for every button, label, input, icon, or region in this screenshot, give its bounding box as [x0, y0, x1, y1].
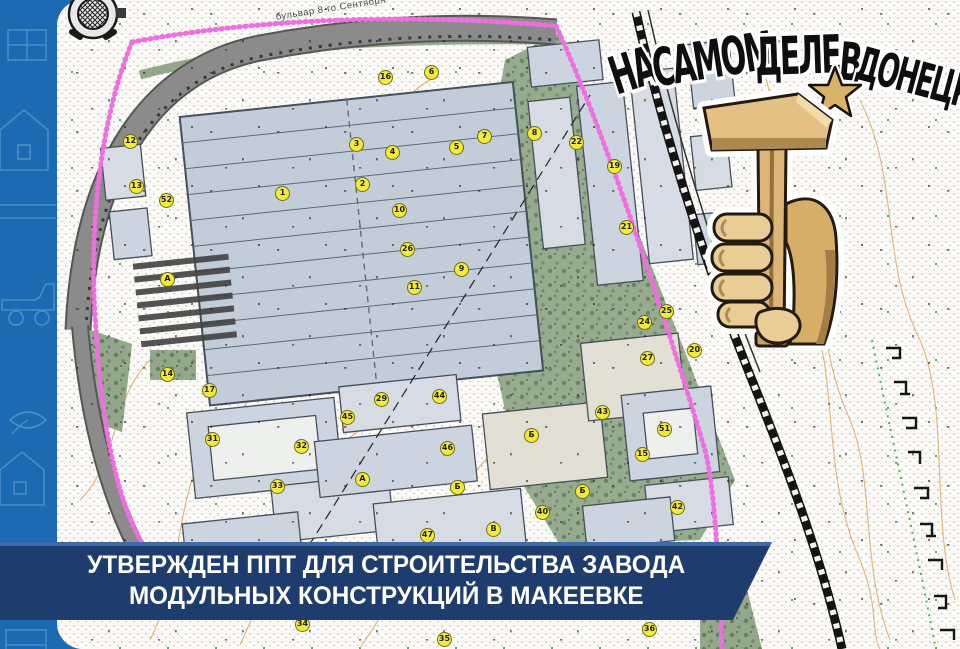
map-marker: 29: [374, 392, 389, 407]
map-marker: 36: [642, 622, 657, 637]
compass-icon: [60, 0, 128, 48]
map-marker: 4: [385, 145, 400, 160]
map-marker: 24: [637, 315, 652, 330]
headline-banner: УТВЕРЖДЕН ППТ ДЛЯ СТРОИТЕЛЬСТВА ЗАВОДА М…: [0, 542, 772, 620]
map-marker: 42: [670, 500, 685, 515]
map-marker: 35: [437, 632, 452, 647]
map-marker: 2: [355, 177, 370, 192]
map-marker: 43: [595, 405, 610, 420]
map-marker: 31: [205, 432, 220, 447]
map-marker: 12: [123, 134, 138, 149]
map-marker: 33: [270, 479, 285, 494]
map-marker: 40: [535, 505, 550, 520]
map-marker: Б: [575, 484, 590, 499]
map-marker: 46: [440, 441, 455, 456]
map-marker: 3: [349, 137, 364, 152]
map-marker: 52: [159, 193, 174, 208]
map-marker: А: [160, 272, 175, 287]
map-marker: 44: [432, 389, 447, 404]
map-marker: 19: [607, 159, 622, 174]
map-marker: 26: [400, 242, 415, 257]
map-marker: 22: [569, 135, 584, 150]
map-marker: Б: [450, 480, 465, 495]
banner-top-border: [0, 542, 772, 546]
map-marker: 10: [392, 203, 407, 218]
banner-line-2: МОДУЛЬНЫХ КОНСТРУКЦИЙ В МАКЕЕВКЕ: [129, 581, 644, 612]
map-marker: 9: [454, 262, 469, 277]
map-marker: 7: [477, 129, 492, 144]
map-marker: 16: [378, 70, 393, 85]
map-marker: 15: [635, 447, 650, 462]
map-marker: Б: [524, 428, 539, 443]
map-marker: 51: [657, 422, 672, 437]
map-marker: 47: [420, 528, 435, 543]
banner-line-1: УТВЕРЖДЕН ППТ ДЛЯ СТРОИТЕЛЬСТВА ЗАВОДА: [87, 550, 685, 581]
map-marker: 13: [129, 179, 144, 194]
map-marker: 5: [449, 140, 464, 155]
map-marker: 17: [202, 383, 217, 398]
map-marker: 8: [527, 126, 542, 141]
map-marker: 25: [659, 304, 674, 319]
map-marker: В: [486, 522, 501, 537]
map-marker: 6: [424, 65, 439, 80]
map-marker: А: [355, 472, 370, 487]
map-marker: 11: [407, 280, 422, 295]
map-marker: 27: [640, 351, 655, 366]
map-marker: 21: [619, 220, 634, 235]
map-marker: 1: [275, 186, 290, 201]
map-marker: 20: [687, 343, 702, 358]
map-marker: 14: [160, 367, 175, 382]
map-marker: 45: [340, 410, 355, 425]
map-marker: 32: [294, 439, 309, 454]
post-image: 1213521166578432102611922192125242720435…: [0, 0, 960, 649]
